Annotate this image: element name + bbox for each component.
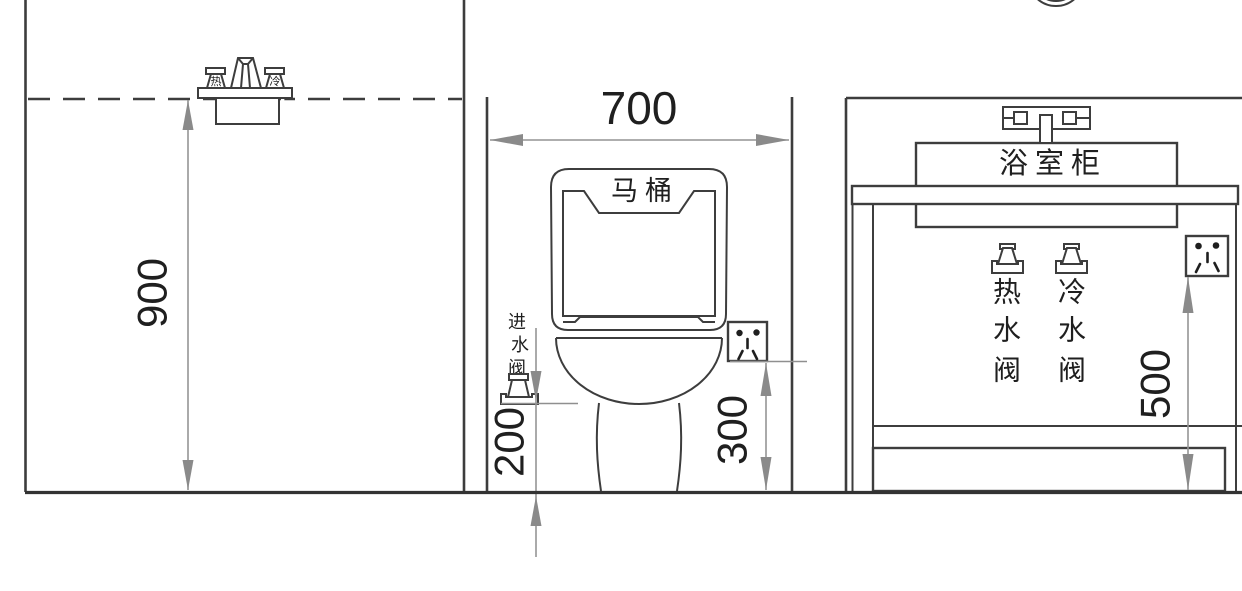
cold-valve-char-1: 冷 bbox=[1058, 277, 1086, 309]
hot-valve-char-2: 水 bbox=[993, 315, 1021, 347]
dimension-300: 300 bbox=[709, 363, 772, 490]
vanity-power-socket-icon bbox=[1186, 236, 1228, 276]
dim-900-arrow-up bbox=[183, 100, 194, 130]
toilet-drawing: 马桶 bbox=[551, 169, 727, 491]
shower-mixer-faucet-icon: 热 冷 bbox=[198, 0, 298, 143]
inlet-valve-char-2: 水 bbox=[511, 335, 529, 355]
shower-section: 热 冷 900 bbox=[26, 0, 465, 492]
pedestal-right bbox=[677, 403, 681, 491]
inlet-valve-char-1: 进 bbox=[508, 312, 526, 332]
toilet-section: 700 马桶 进 水 阀 200 bbox=[486, 82, 808, 557]
dim-700-value: 700 bbox=[601, 82, 678, 134]
inlet-valve-body-icon bbox=[508, 380, 529, 397]
cold-valve-body bbox=[1062, 248, 1081, 264]
cabinet-label: 浴室柜 bbox=[999, 147, 1107, 180]
faucet-stem bbox=[1040, 115, 1052, 143]
dimension-900: 900 bbox=[129, 100, 194, 490]
mixer-spout bbox=[231, 58, 261, 88]
cold-valve-label: 冷 水 阀 bbox=[1058, 277, 1086, 387]
toilet-power-socket-icon bbox=[728, 322, 807, 362]
cold-valve-char-3: 阀 bbox=[1058, 355, 1086, 387]
bowl-outline bbox=[556, 338, 722, 404]
dim-300-arrow-down bbox=[761, 457, 772, 490]
cold-handle-label: 冷 bbox=[270, 75, 281, 88]
hot-water-valve-icon bbox=[992, 244, 1023, 273]
hot-handle-label: 热 bbox=[211, 75, 222, 88]
socket-pin-hole bbox=[736, 330, 742, 336]
vanity-section: 浴室柜 热 水 bbox=[846, 0, 1242, 493]
cold-water-valve-icon bbox=[1056, 244, 1087, 273]
dim-700-arrow-left bbox=[490, 134, 523, 146]
cabinet-bottom-shelf bbox=[873, 448, 1225, 491]
dim-500-arrow-up bbox=[1183, 277, 1194, 313]
dim-900-arrow-down bbox=[183, 460, 194, 490]
dim-300-arrow-up bbox=[761, 363, 772, 396]
toilet-label: 马桶 bbox=[611, 176, 679, 206]
hot-valve-label: 热 水 阀 bbox=[993, 277, 1021, 387]
socket-pin-hole bbox=[1213, 242, 1220, 249]
dimension-700: 700 bbox=[490, 82, 789, 146]
vanity-faucet-icon bbox=[1003, 107, 1090, 143]
cold-valve-char-2: 水 bbox=[1058, 315, 1086, 347]
countertop bbox=[852, 186, 1238, 204]
dim-200-value: 200 bbox=[486, 407, 533, 477]
pedestal-left bbox=[597, 403, 601, 491]
drawing-canvas: 热 冷 900 700 马桶 bbox=[0, 0, 1242, 591]
dim-300-value: 300 bbox=[709, 395, 756, 465]
mixer-base-plate bbox=[198, 88, 292, 98]
dim-700-arrow-right bbox=[756, 134, 789, 146]
mixer-body bbox=[216, 98, 279, 124]
bathroom-elevation-drawing: 热 冷 900 700 马桶 bbox=[0, 0, 1242, 591]
dim-200-arrow-up bbox=[531, 496, 542, 526]
socket-pin-hole bbox=[1195, 243, 1202, 250]
hot-valve-body bbox=[998, 248, 1017, 264]
hot-valve-char-1: 热 bbox=[993, 277, 1021, 309]
dim-900-value: 900 bbox=[129, 258, 176, 328]
dim-500-value: 500 bbox=[1132, 349, 1179, 419]
socket-pin-hole bbox=[753, 329, 759, 335]
hot-valve-char-3: 阀 bbox=[993, 355, 1021, 387]
